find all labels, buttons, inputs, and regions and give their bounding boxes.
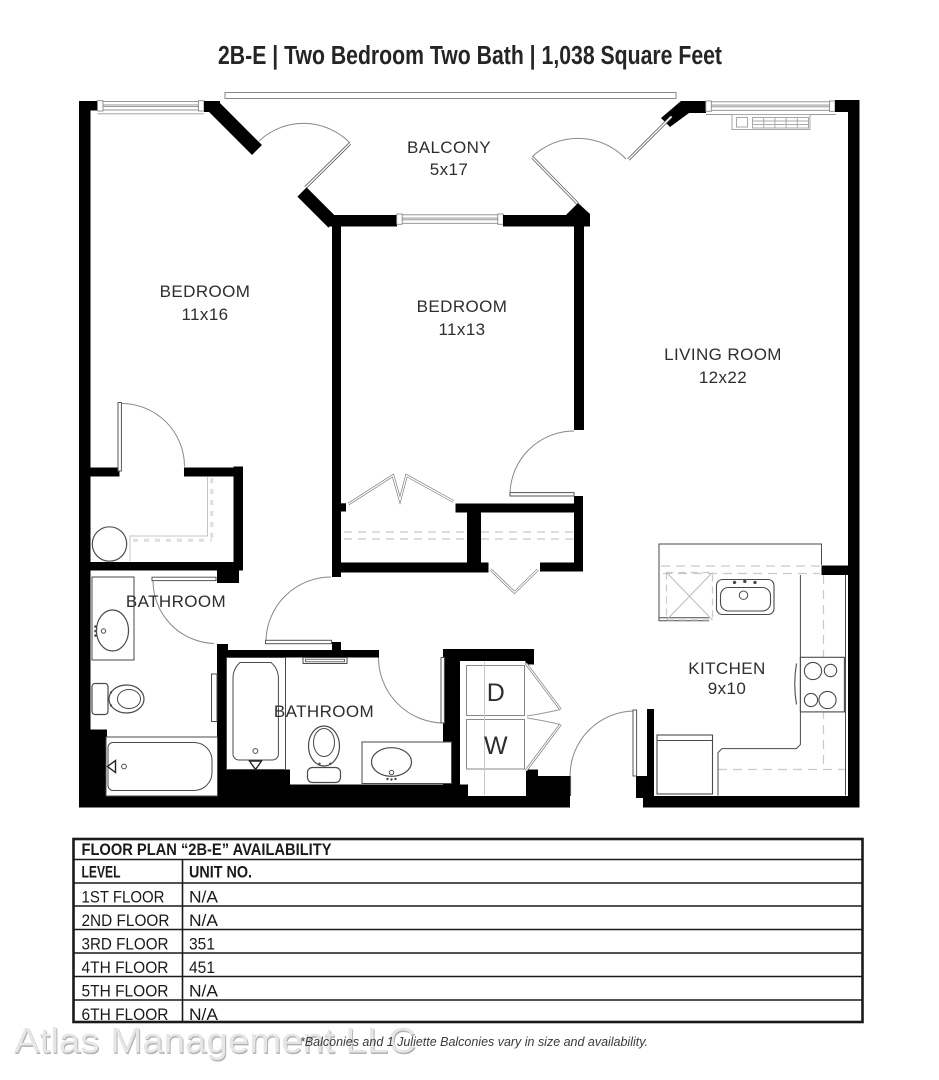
svg-text:3RD FLOOR: 3RD FLOOR <box>82 935 169 953</box>
svg-text:4TH FLOOR: 4TH FLOOR <box>82 959 169 977</box>
svg-text:BATHROOM: BATHROOM <box>274 702 374 721</box>
svg-text:351: 351 <box>189 935 215 953</box>
svg-text:5TH FLOOR: 5TH FLOOR <box>82 982 169 1000</box>
svg-text:W: W <box>484 732 508 760</box>
svg-text:BALCONY: BALCONY <box>407 138 491 157</box>
svg-text:N/A: N/A <box>189 982 218 1000</box>
svg-text:LEVEL: LEVEL <box>82 864 121 882</box>
svg-text:BATHROOM: BATHROOM <box>126 592 226 611</box>
svg-text:BEDROOM: BEDROOM <box>160 282 251 301</box>
svg-text:12x22: 12x22 <box>699 368 747 387</box>
svg-text:5x17: 5x17 <box>430 160 468 179</box>
svg-text:N/A: N/A <box>189 889 218 907</box>
svg-text:2ND FLOOR: 2ND FLOOR <box>82 912 170 930</box>
svg-text:KITCHEN: KITCHEN <box>688 659 765 678</box>
svg-text:*Balconies and 1 Juliette Balc: *Balconies and 1 Juliette Balconies vary… <box>300 1034 648 1049</box>
svg-text:451: 451 <box>189 959 215 977</box>
svg-text:LIVING ROOM: LIVING ROOM <box>664 345 782 364</box>
svg-text:FLOOR PLAN “2B-E” AVAILABILITY: FLOOR PLAN “2B-E” AVAILABILITY <box>82 841 332 859</box>
svg-text:9x10: 9x10 <box>708 679 746 698</box>
svg-text:11x13: 11x13 <box>438 320 485 339</box>
svg-text:BEDROOM: BEDROOM <box>417 297 508 316</box>
svg-text:D: D <box>487 679 505 707</box>
svg-text:UNIT NO.: UNIT NO. <box>189 864 252 882</box>
svg-text:N/A: N/A <box>189 912 218 930</box>
svg-text:2B-E | Two Bedroom Two Bath |: 2B-E | Two Bedroom Two Bath | 1,038 Squa… <box>218 42 722 70</box>
svg-text:1ST FLOOR: 1ST FLOOR <box>82 889 165 907</box>
svg-text:11x16: 11x16 <box>181 305 228 324</box>
